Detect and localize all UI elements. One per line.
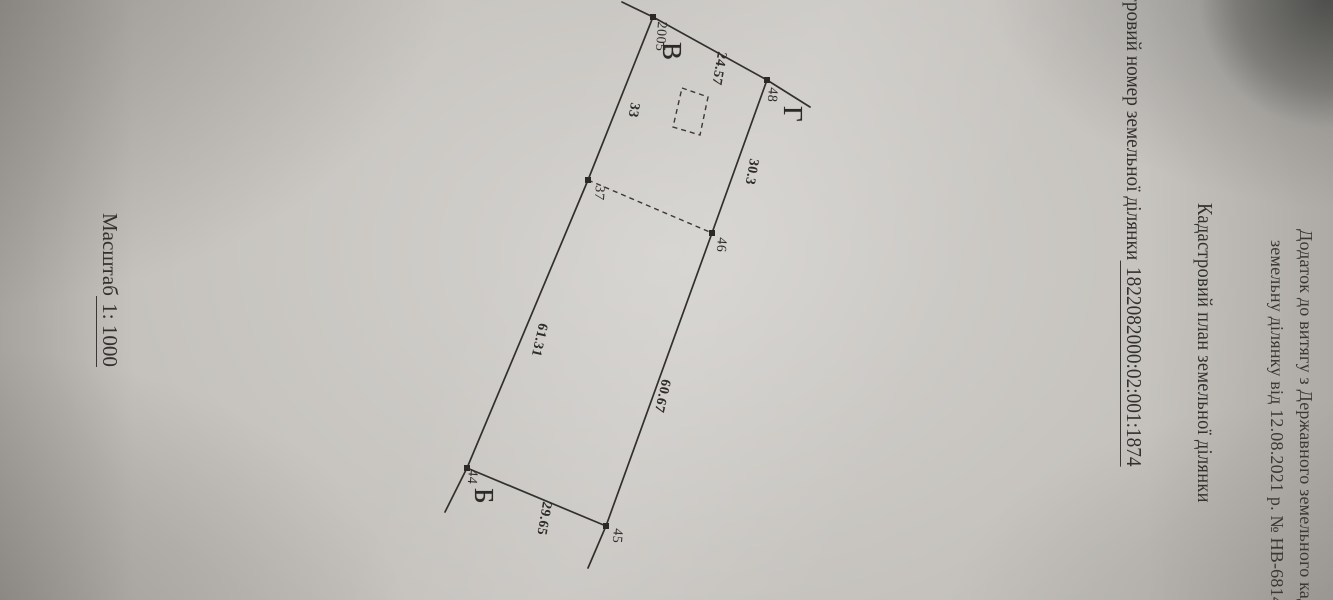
point-number-label: 46 <box>712 237 729 253</box>
scale-label: Масштаб <box>98 213 122 296</box>
scale-value: 1: 1000 <box>96 296 122 367</box>
corner-letter-label: В <box>656 42 687 60</box>
boundary-left-edge <box>445 17 653 512</box>
scale-note: Масштаб1: 1000 <box>97 213 122 367</box>
point-marker <box>650 14 656 20</box>
corner-letter-label: Г <box>777 106 808 122</box>
document-content: 2005 48 37 46 44 45 В Г Б 24.57 30.3 33 … <box>0 0 1333 600</box>
corner-letter-label: Б <box>468 488 499 504</box>
cadastral-number-label: Кадастровий номер земельної ділянки <box>1122 0 1146 260</box>
point-marker <box>585 177 591 183</box>
plan-title: Кадастровий план земельної ділянки <box>1192 203 1217 503</box>
point-number-label: 48 <box>763 87 780 103</box>
cadastral-number-line: Кадастровий номер земельної ділянки18220… <box>1121 0 1146 467</box>
cadastral-number-value: 1822082000:02:001:1874 <box>1120 260 1146 466</box>
point-number-label: 45 <box>608 528 625 544</box>
annex-note-line2: земельну ділянку від 12.08.2021 р. № НВ-… <box>1266 240 1287 600</box>
point-number-label: 44 <box>463 469 480 485</box>
edge-length-label: 33 <box>624 101 642 119</box>
point-number-label: 37 <box>590 185 607 201</box>
annex-note-line1: Додаток до витягу з Державного земельног… <box>1295 229 1316 600</box>
scanned-page: 2005 48 37 46 44 45 В Г Б 24.57 30.3 33 … <box>0 0 1333 600</box>
building-outline <box>673 88 708 135</box>
boundary-point-markers <box>464 14 770 529</box>
point-marker <box>764 77 770 83</box>
point-marker <box>709 230 715 236</box>
boundary-right-edge <box>588 80 767 568</box>
